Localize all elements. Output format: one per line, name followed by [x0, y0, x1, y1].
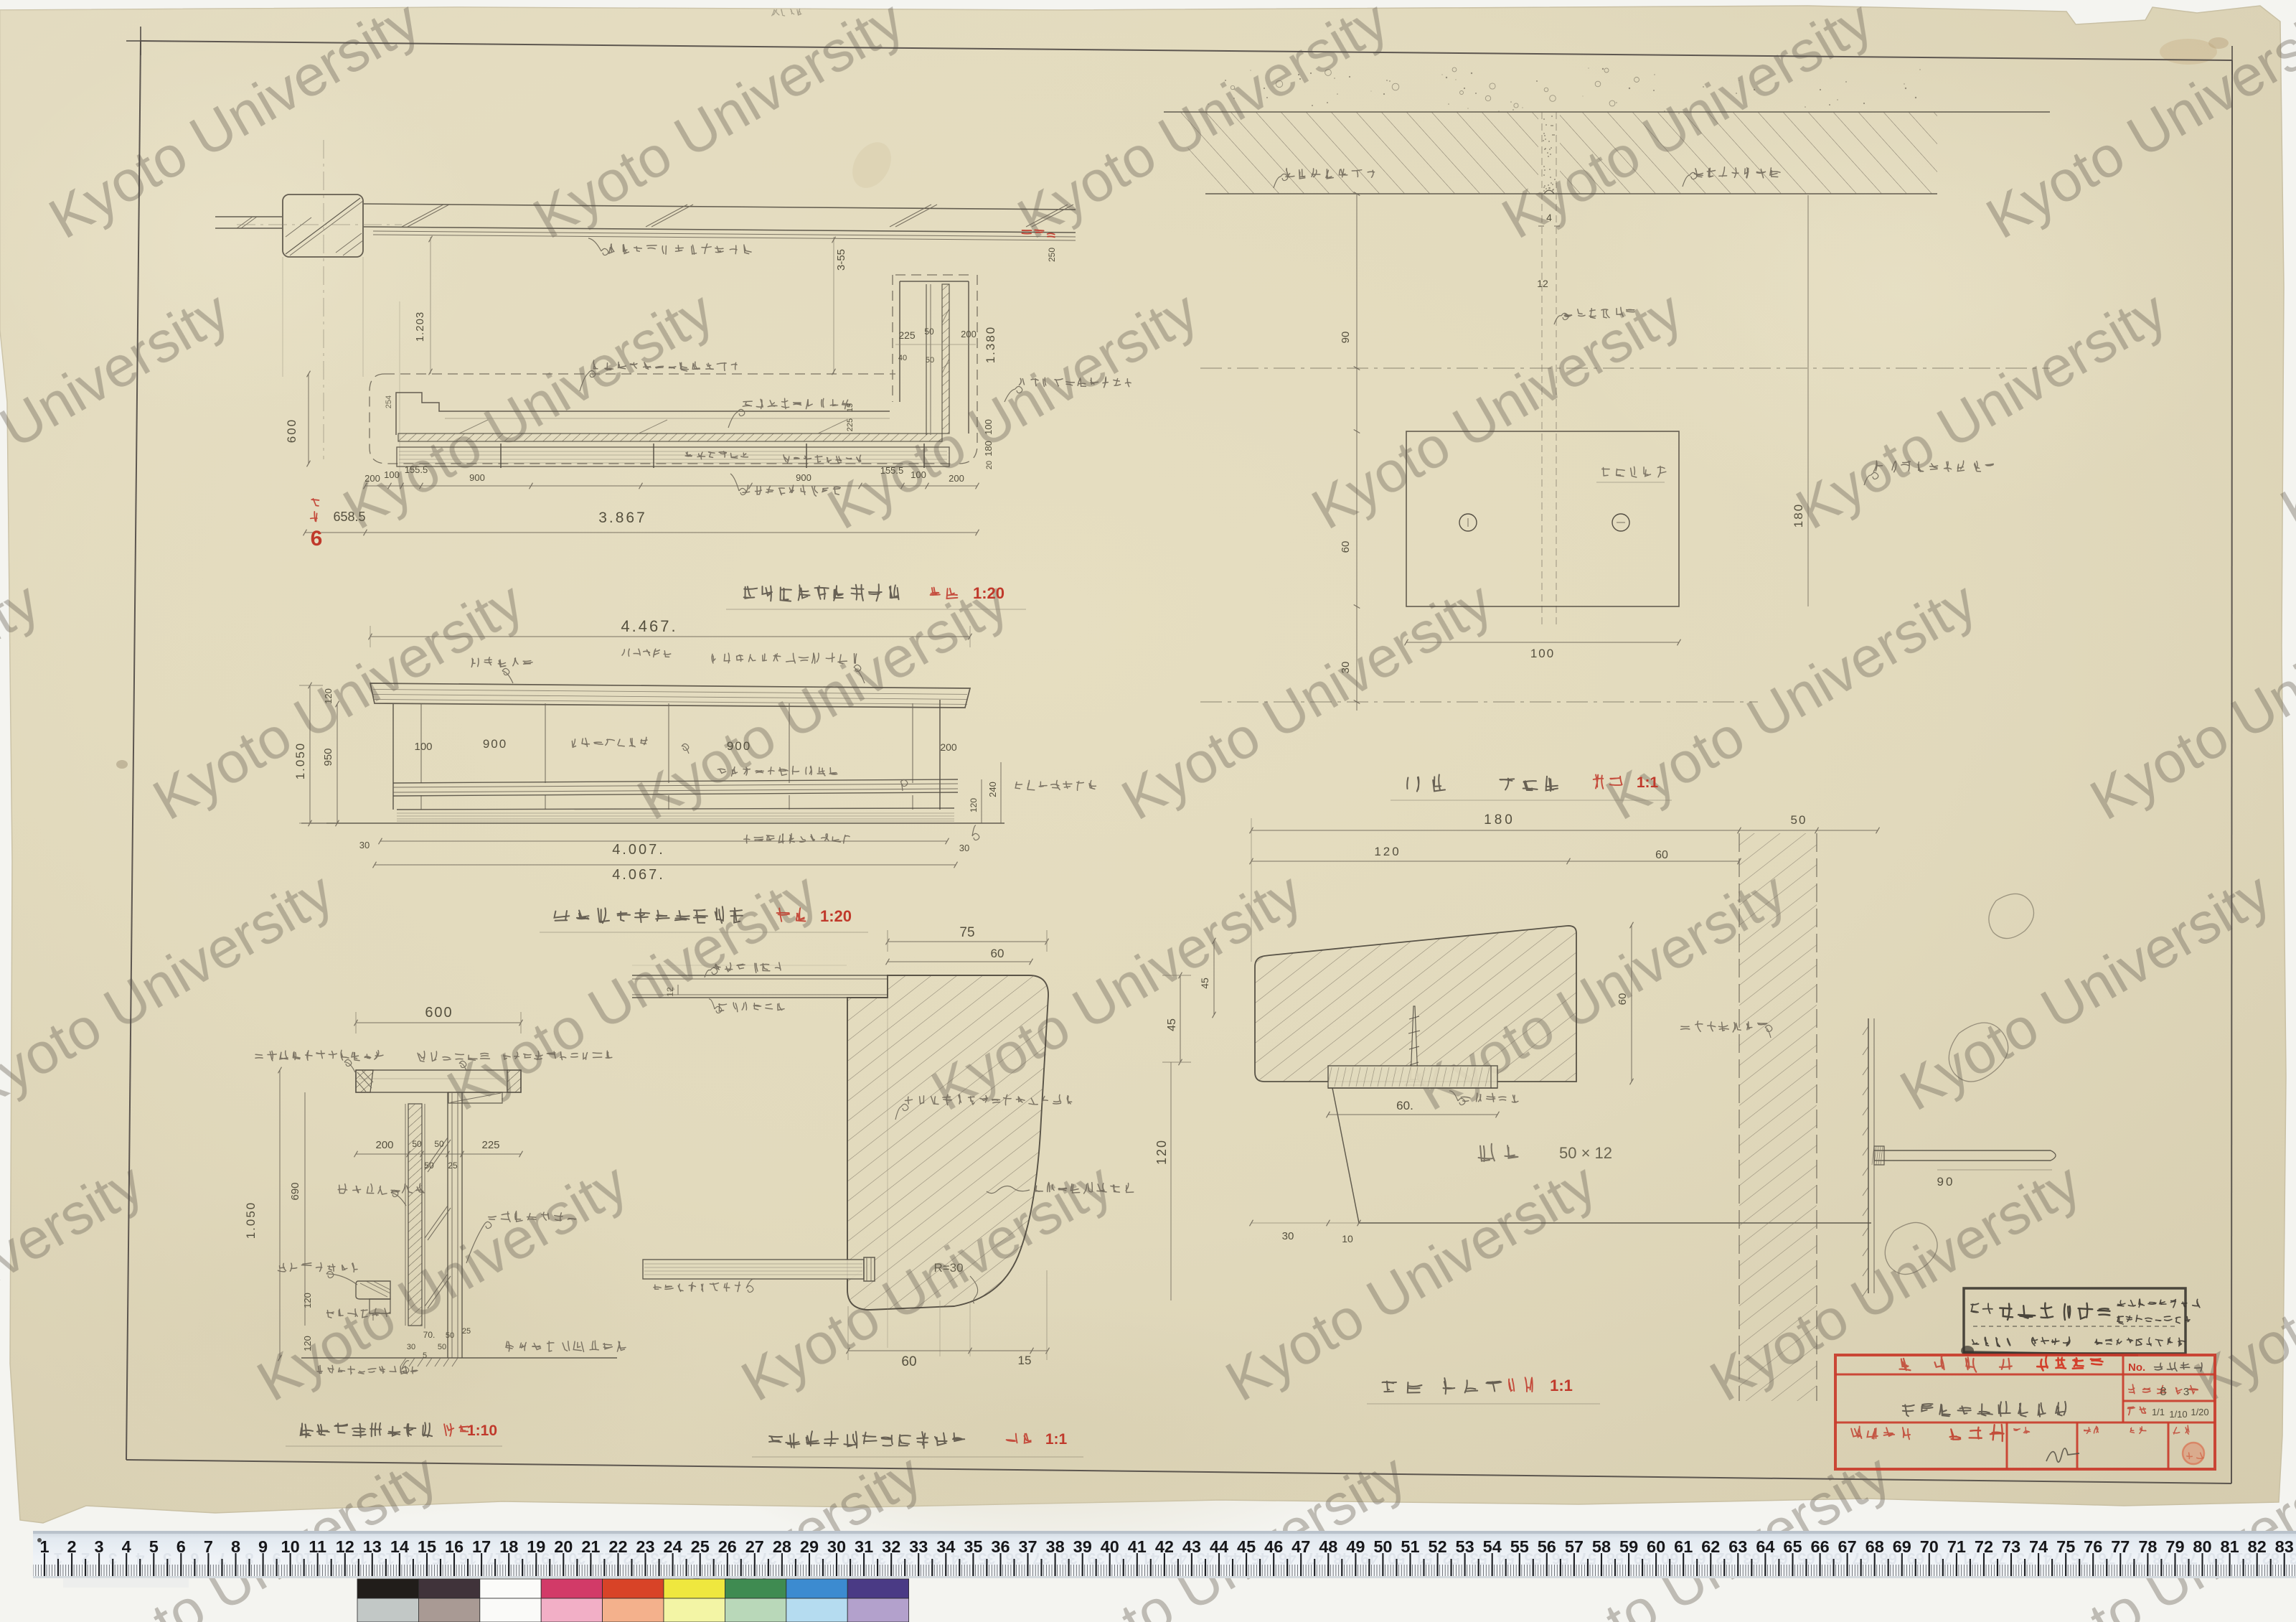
svg-text:180: 180	[1484, 812, 1515, 828]
svg-text:225: 225	[481, 1139, 499, 1151]
svg-text:60: 60	[1655, 849, 1668, 861]
svg-text:6: 6	[311, 527, 323, 550]
svg-text:50: 50	[924, 327, 934, 337]
svg-text:50: 50	[926, 356, 934, 365]
svg-text:120: 120	[302, 1336, 313, 1351]
svg-text:200: 200	[375, 1139, 393, 1151]
svg-text:50: 50	[446, 1331, 454, 1340]
svg-text:3.867: 3.867	[598, 510, 647, 526]
svg-text:200: 200	[940, 741, 957, 753]
svg-text:45: 45	[1199, 978, 1210, 989]
svg-text:100: 100	[384, 469, 400, 480]
svg-text:180: 180	[983, 441, 994, 456]
svg-text:900: 900	[469, 472, 485, 483]
svg-text:60: 60	[1340, 541, 1352, 553]
svg-text:900: 900	[483, 737, 507, 751]
svg-text:200: 200	[364, 473, 380, 484]
svg-text:1:20: 1:20	[820, 907, 852, 925]
svg-text:8: 8	[2160, 1386, 2167, 1398]
svg-text:15: 15	[846, 403, 855, 412]
svg-text:1.050: 1.050	[244, 1201, 258, 1239]
svg-text:155.5: 155.5	[405, 464, 428, 475]
svg-text:25: 25	[462, 1327, 471, 1336]
svg-text:1:20: 1:20	[973, 584, 1004, 602]
svg-text:120: 120	[1374, 845, 1401, 858]
svg-text:1/20: 1/20	[2191, 1407, 2208, 1417]
svg-text:50 × 12: 50 × 12	[1559, 1144, 1612, 1162]
svg-text:950: 950	[322, 748, 334, 766]
svg-text:1.050: 1.050	[293, 742, 307, 780]
svg-text:12: 12	[665, 987, 675, 997]
svg-text:R=30: R=30	[933, 1261, 963, 1275]
svg-text:25: 25	[448, 1161, 458, 1171]
svg-text:120: 120	[969, 798, 979, 812]
svg-text:100: 100	[1530, 647, 1555, 660]
svg-text:3: 3	[2183, 1386, 2189, 1398]
svg-text:254: 254	[385, 395, 393, 408]
svg-text:100: 100	[983, 419, 994, 435]
svg-text:4.007.: 4.007.	[612, 842, 665, 858]
svg-text:4: 4	[1546, 212, 1552, 223]
svg-text:4.067.: 4.067.	[612, 867, 665, 883]
svg-text:1:10: 1:10	[467, 1422, 497, 1439]
svg-text:50: 50	[412, 1139, 422, 1149]
svg-text:30: 30	[1282, 1230, 1294, 1242]
svg-text:50: 50	[438, 1343, 446, 1351]
svg-text:4.467.: 4.467.	[621, 617, 677, 635]
svg-text:900: 900	[796, 472, 811, 483]
svg-text:900: 900	[727, 739, 751, 753]
svg-text:90: 90	[1340, 332, 1352, 344]
svg-text:225: 225	[846, 418, 855, 431]
svg-text:155.5: 155.5	[880, 465, 904, 476]
svg-text:1/1: 1/1	[2152, 1407, 2165, 1417]
svg-text:658.5: 658.5	[333, 510, 365, 524]
svg-text:70.: 70.	[423, 1330, 436, 1340]
svg-text:120: 120	[302, 1293, 313, 1308]
svg-text:No.: No.	[2128, 1361, 2145, 1374]
svg-text:60: 60	[991, 947, 1004, 960]
svg-text:45: 45	[1166, 1018, 1178, 1031]
svg-text:60: 60	[1617, 993, 1629, 1005]
svg-text:120: 120	[1154, 1139, 1169, 1165]
svg-text:200: 200	[949, 473, 964, 484]
svg-text:50: 50	[434, 1139, 444, 1149]
svg-text:1.380: 1.380	[984, 326, 997, 364]
svg-text:75: 75	[959, 925, 974, 940]
svg-text:120: 120	[323, 688, 334, 704]
svg-text:200: 200	[961, 329, 977, 339]
svg-text:100: 100	[414, 741, 432, 753]
svg-text:90: 90	[1937, 1175, 1955, 1189]
svg-text:240: 240	[987, 782, 998, 797]
svg-text:60.: 60.	[1396, 1099, 1413, 1112]
svg-text:50: 50	[1791, 813, 1807, 827]
svg-text:100: 100	[911, 469, 926, 480]
svg-text:40: 40	[898, 354, 907, 362]
svg-text:1:1: 1:1	[1550, 1377, 1573, 1394]
svg-text:30: 30	[407, 1343, 415, 1351]
svg-text:60: 60	[901, 1354, 916, 1369]
svg-text:30: 30	[959, 843, 969, 853]
svg-text:5: 5	[423, 1351, 427, 1360]
svg-text:1.203: 1.203	[414, 311, 426, 342]
svg-text:30: 30	[359, 840, 370, 850]
svg-text:1:1: 1:1	[1637, 774, 1659, 791]
svg-text:600: 600	[425, 1005, 453, 1021]
svg-text:180: 180	[1792, 503, 1805, 528]
svg-text:15: 15	[1018, 1354, 1032, 1367]
svg-text:3-55: 3-55	[835, 249, 847, 271]
svg-text:30: 30	[1340, 662, 1352, 674]
svg-text:690: 690	[289, 1182, 301, 1200]
svg-text:10: 10	[1342, 1233, 1353, 1244]
svg-text:1/10: 1/10	[2169, 1409, 2187, 1420]
svg-text:250: 250	[1047, 248, 1057, 262]
svg-text:225: 225	[898, 329, 916, 341]
svg-text:20: 20	[985, 461, 994, 469]
svg-text:1:1: 1:1	[1045, 1431, 1068, 1448]
svg-text:600: 600	[285, 418, 298, 443]
svg-text:50: 50	[424, 1161, 434, 1171]
svg-text:12: 12	[1537, 278, 1548, 289]
